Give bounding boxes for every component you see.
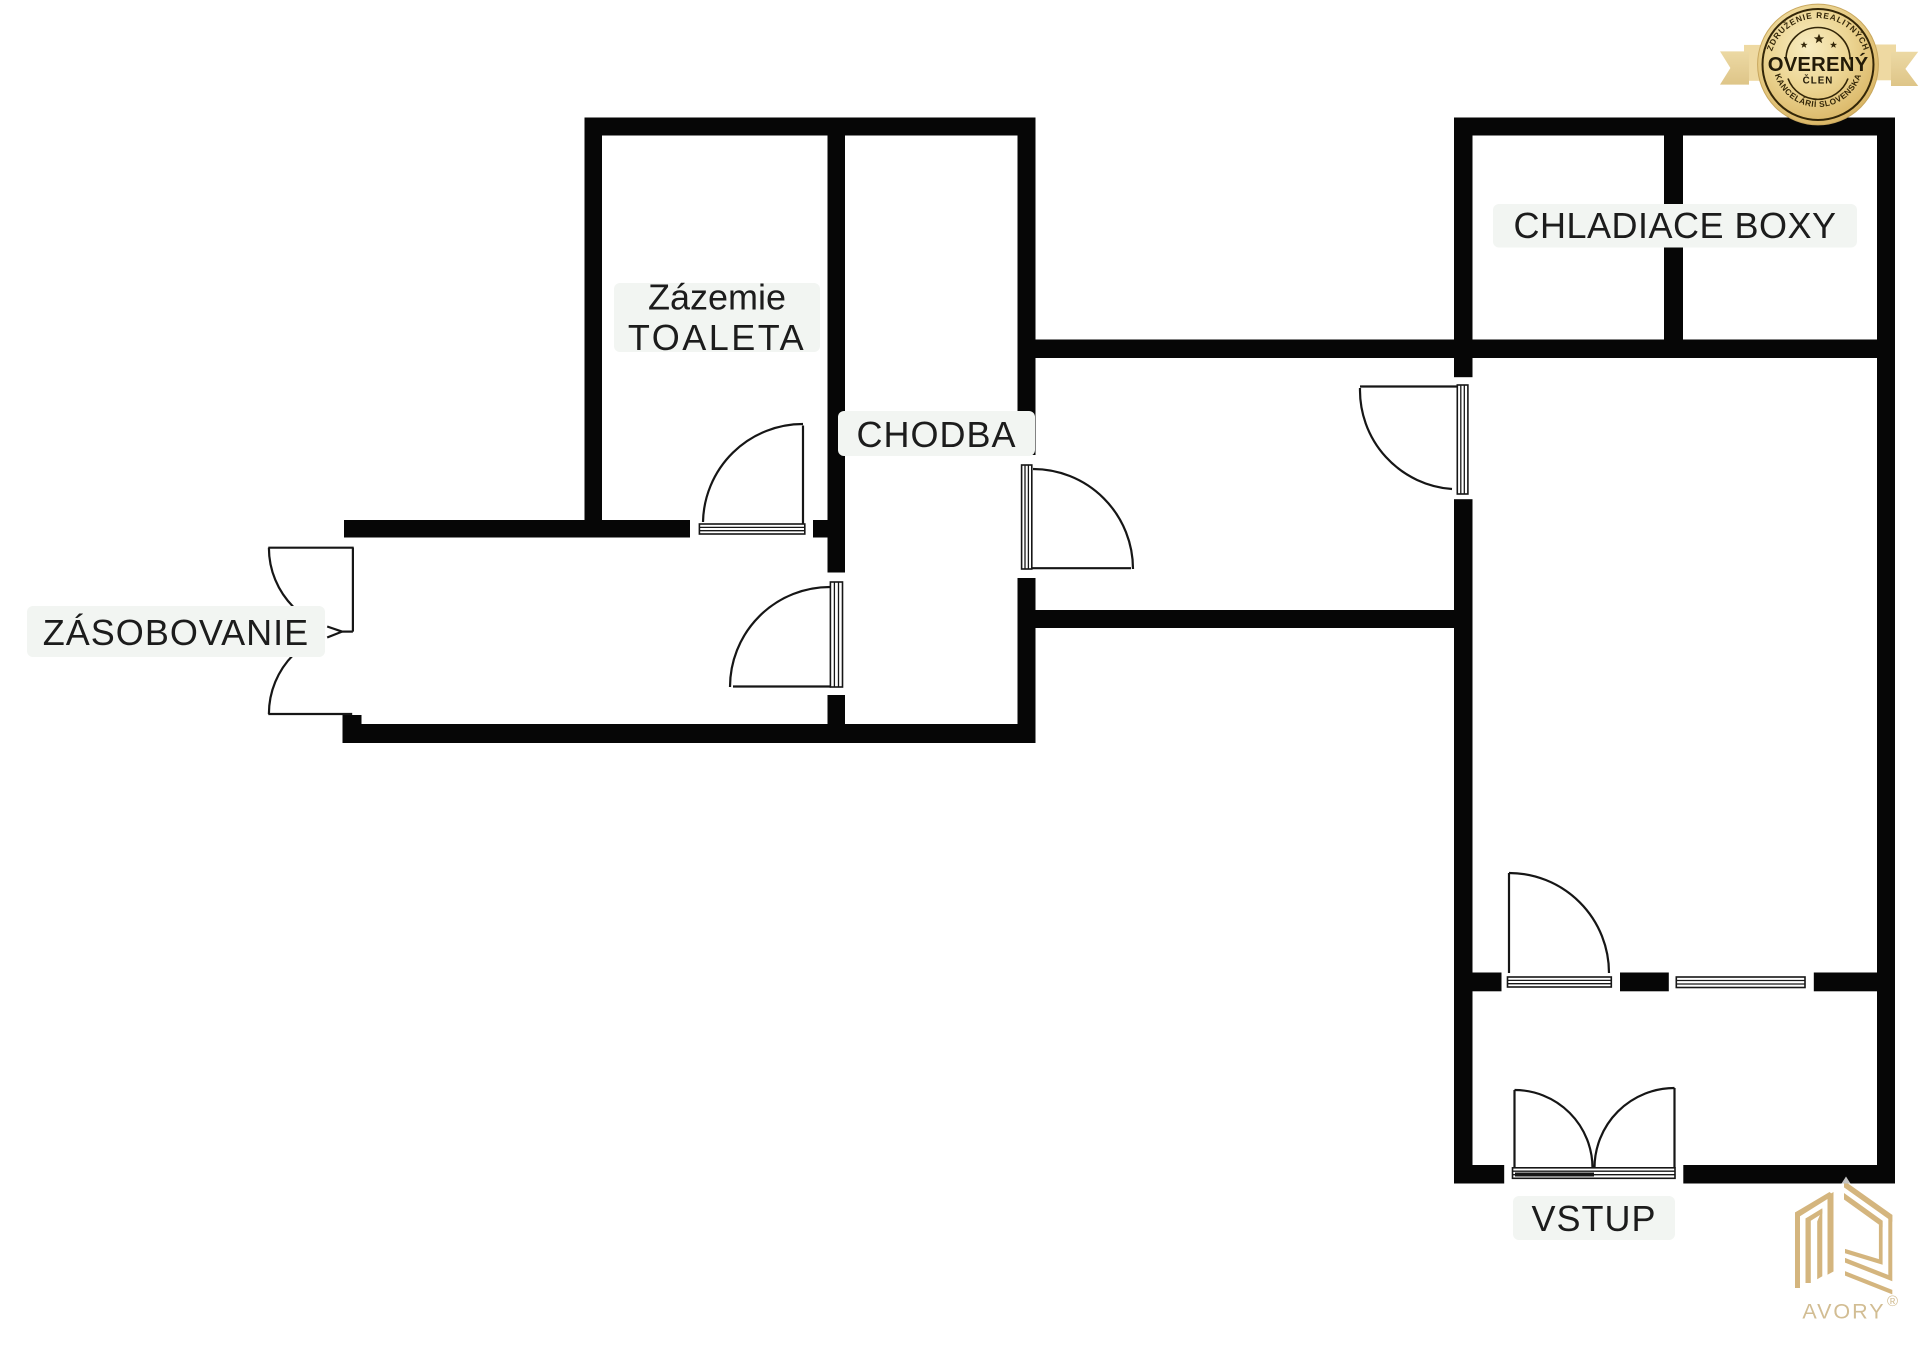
svg-text:VSTUP: VSTUP <box>1531 1198 1656 1239</box>
svg-text:CHODBA: CHODBA <box>856 414 1016 455</box>
svg-text:TOALETA: TOALETA <box>628 317 806 358</box>
svg-text:ČLEN: ČLEN <box>1803 75 1834 87</box>
svg-text:AVORY: AVORY <box>1802 1300 1885 1324</box>
svg-text:®: ® <box>1887 1293 1898 1310</box>
svg-text:CHLADIACE BOXY: CHLADIACE BOXY <box>1513 205 1836 246</box>
svg-text:ZÁSOBOVANIE: ZÁSOBOVANIE <box>43 612 309 653</box>
svg-text:Zázemie: Zázemie <box>648 277 786 318</box>
svg-text:OVERENÝ: OVERENÝ <box>1768 52 1869 76</box>
